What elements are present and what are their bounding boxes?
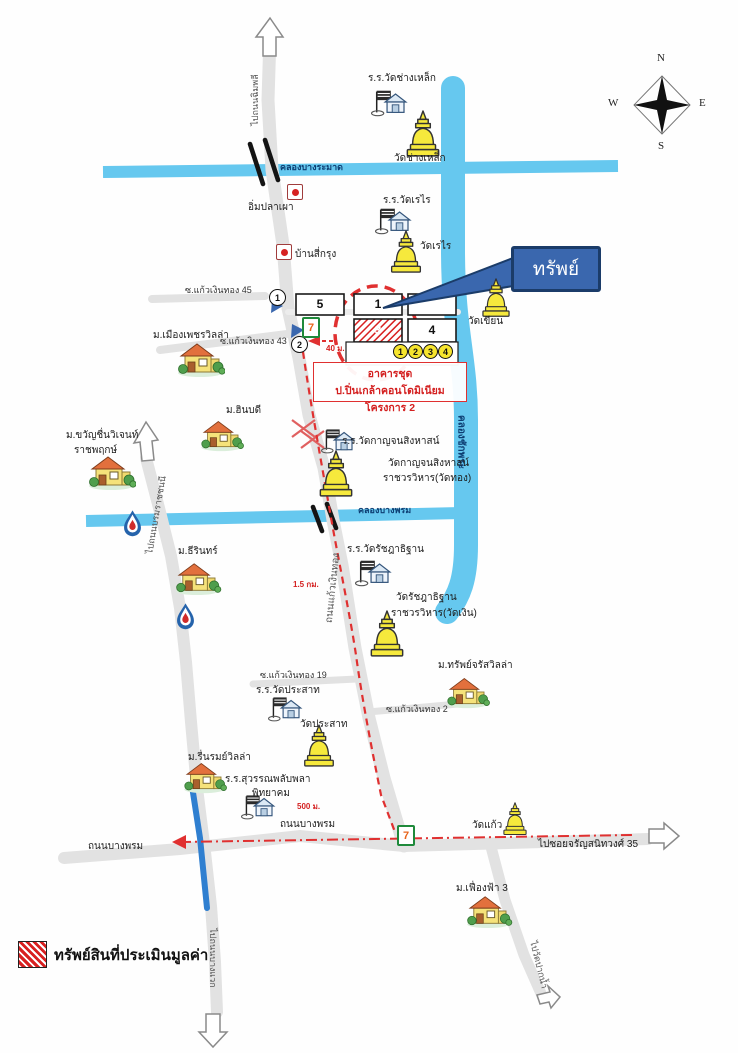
label-school-kanchana: ร.ร.วัดกาญจนสิงหาสน์ — [342, 436, 439, 447]
label-bang-phrom-right: ถนนบางพรม — [280, 819, 335, 830]
unit-circle-2: 2 — [408, 344, 423, 359]
label-dist-500m: 500 ม. — [297, 803, 320, 812]
property-note-line1: อาคารชุด — [314, 365, 466, 382]
route-point-1: 1 — [269, 289, 286, 306]
label-mu-khwanchuen-2: ราชพฤกษ์ — [74, 445, 117, 456]
block-1-number: 1 — [354, 297, 402, 311]
arrow-northwest-icon — [134, 422, 158, 461]
label-road-to-chimphli: ไปถนนฉิมพลี — [251, 74, 261, 126]
route-point-2: 2 — [291, 336, 308, 353]
label-dist-1-5km: 1.5 กม. — [293, 581, 319, 590]
chedi-prasat-icon — [305, 725, 334, 766]
seven-eleven-icon-1: 7 — [302, 317, 320, 338]
house-khwanchuen-icon — [89, 457, 136, 490]
label-wat-kaeo: วัดแก้ว — [472, 820, 502, 831]
compass-w: W — [608, 97, 618, 109]
label-wat-prasat: วัดประสาท — [300, 719, 348, 730]
label-wat-khian: วัดเขียน — [468, 316, 503, 327]
label-school-suwan-2: พิทยาคม — [252, 788, 290, 799]
property-note-line2: ป.ปิ่นเกล้าคอนโดมิเนียม โครงการ 2 — [314, 382, 466, 416]
seven-eleven-icon-2: 7 — [397, 825, 415, 846]
label-ban-si-krung: บ้านสี่กรุง — [295, 249, 336, 260]
house-thirin-icon — [176, 564, 221, 595]
label-im-pla-phao: อิ่มปลาเผา — [248, 202, 294, 213]
label-mu-thirin: ม.ธีรินทร์ — [178, 546, 218, 557]
block-5-number: 5 — [296, 297, 344, 311]
compass-rose — [634, 76, 690, 134]
label-wat-ratchada-1: วัดรัชฎาธิฐาน — [396, 592, 457, 603]
canal-bang-ramat — [103, 166, 618, 172]
unit-circle-3: 3 — [423, 344, 438, 359]
house-hinbodi-icon — [201, 422, 243, 452]
block-4-number: 4 — [408, 323, 456, 337]
label-mu-khwanchuen-1: ม.ขวัญชื่นวิเจนท์ — [66, 430, 138, 441]
label-school-changlek: ร.ร.วัดช่างเหล็ก — [368, 73, 436, 84]
block-3-number: 3 — [354, 323, 402, 337]
arrow-east-icon — [649, 823, 679, 849]
label-wat-kanchana-1: วัดกาญจนสิงหาสน์ — [388, 458, 469, 469]
school-rerai-icon — [376, 209, 410, 234]
chedi-kaeo-icon — [504, 803, 526, 835]
label-school-rerai: ร.ร.วัดเรไร — [383, 195, 431, 206]
property-callout-label: ทรัพย์ — [533, 254, 579, 284]
label-mu-sap-charat: ม.ทรัพย์จรัสวิลล่า — [438, 660, 513, 671]
school-ratchada-icon — [356, 561, 390, 586]
arrow-north-icon — [256, 18, 283, 56]
chedi-rerai-icon — [392, 231, 421, 272]
label-wat-changlek: วัดช่างเหล็ก — [394, 153, 446, 164]
property-note: อาคารชุด ป.ปิ่นเกล้าคอนโดมิเนียม โครงการ… — [313, 362, 467, 402]
label-bang-phrom-left: ถนนบางพรม — [88, 841, 143, 852]
label-road-to-bang-waek: ไปถนนบางแวก — [207, 928, 217, 987]
label-mu-fueangfa: ม.เฟื่องฟ้า 3 — [456, 883, 508, 894]
house-sap-charat-icon — [447, 679, 489, 709]
chedi-changlek-icon — [407, 111, 438, 156]
label-mu-hinbodi: ม.ฮินบดี — [226, 405, 261, 416]
legend-label: ทรัพย์สินที่ประเมินมูลค่า — [54, 943, 208, 967]
compass-s: S — [658, 140, 664, 152]
restaurant-icon-2 — [276, 244, 292, 260]
restaurant-icon-1 — [287, 184, 303, 200]
label-soi-45: ซ.แก้วเงินทอง 45 — [185, 286, 252, 296]
label-dist-40m: 40 ม. — [326, 345, 345, 354]
label-road-to-charansanitwong: ไปซอยจรัญสนิทวงศ์ 35 — [538, 839, 638, 850]
label-soi-2: ซ.แก้วเงินทอง 2 — [386, 705, 448, 715]
label-school-suwan-1: ร.ร.สุวรรณพลับพลา — [225, 774, 310, 785]
label-wat-ratchada-2: ราชวรวิหาร(วัดเงิน) — [391, 608, 477, 619]
school-prasat-icon — [269, 697, 301, 720]
label-soi-43: ซ.แก้วเงินทอง 43 — [220, 337, 287, 347]
label-school-ratchada: ร.ร.วัดรัชฎาธิฐาน — [347, 544, 424, 555]
school-changlek-icon — [372, 91, 406, 116]
label-soi-19: ซ.แก้วเงินทอง 19 — [260, 671, 327, 681]
arrow-south-icon — [199, 1014, 227, 1047]
label-canal-bang-ramat: คลองบางระมาด — [280, 163, 343, 173]
label-canal-bang-phrom: คลองบางพรม — [358, 506, 411, 516]
compass-n: N — [657, 52, 665, 64]
unit-circle-4: 4 — [438, 344, 453, 359]
legend: ทรัพย์สินที่ประเมินมูลค่า — [18, 941, 208, 968]
label-mu-ruenrom: ม.รื่นรมย์วิลล่า — [188, 752, 251, 763]
legend-hatch-swatch — [18, 941, 47, 968]
label-mu-mueang-phet: ม.เมืองเพชรวิลล่า — [153, 330, 229, 341]
label-school-prasat: ร.ร.วัดประสาท — [256, 685, 320, 696]
road-soi-45 — [152, 296, 265, 299]
property-callout: ทรัพย์ — [511, 246, 601, 292]
appraisal-map: ไปถนนฉิมพลี ร.ร.วัดช่างเหล็ก วัดช่างเหล็… — [0, 0, 738, 1053]
unit-circle-1: 1 — [393, 344, 408, 359]
label-wat-rerai: วัดเรไร — [420, 241, 451, 252]
label-wat-kanchana-2: ราชวรวิหาร(วัดทอง) — [383, 473, 471, 484]
compass-e: E — [699, 97, 706, 109]
map-canvas — [0, 0, 738, 1053]
